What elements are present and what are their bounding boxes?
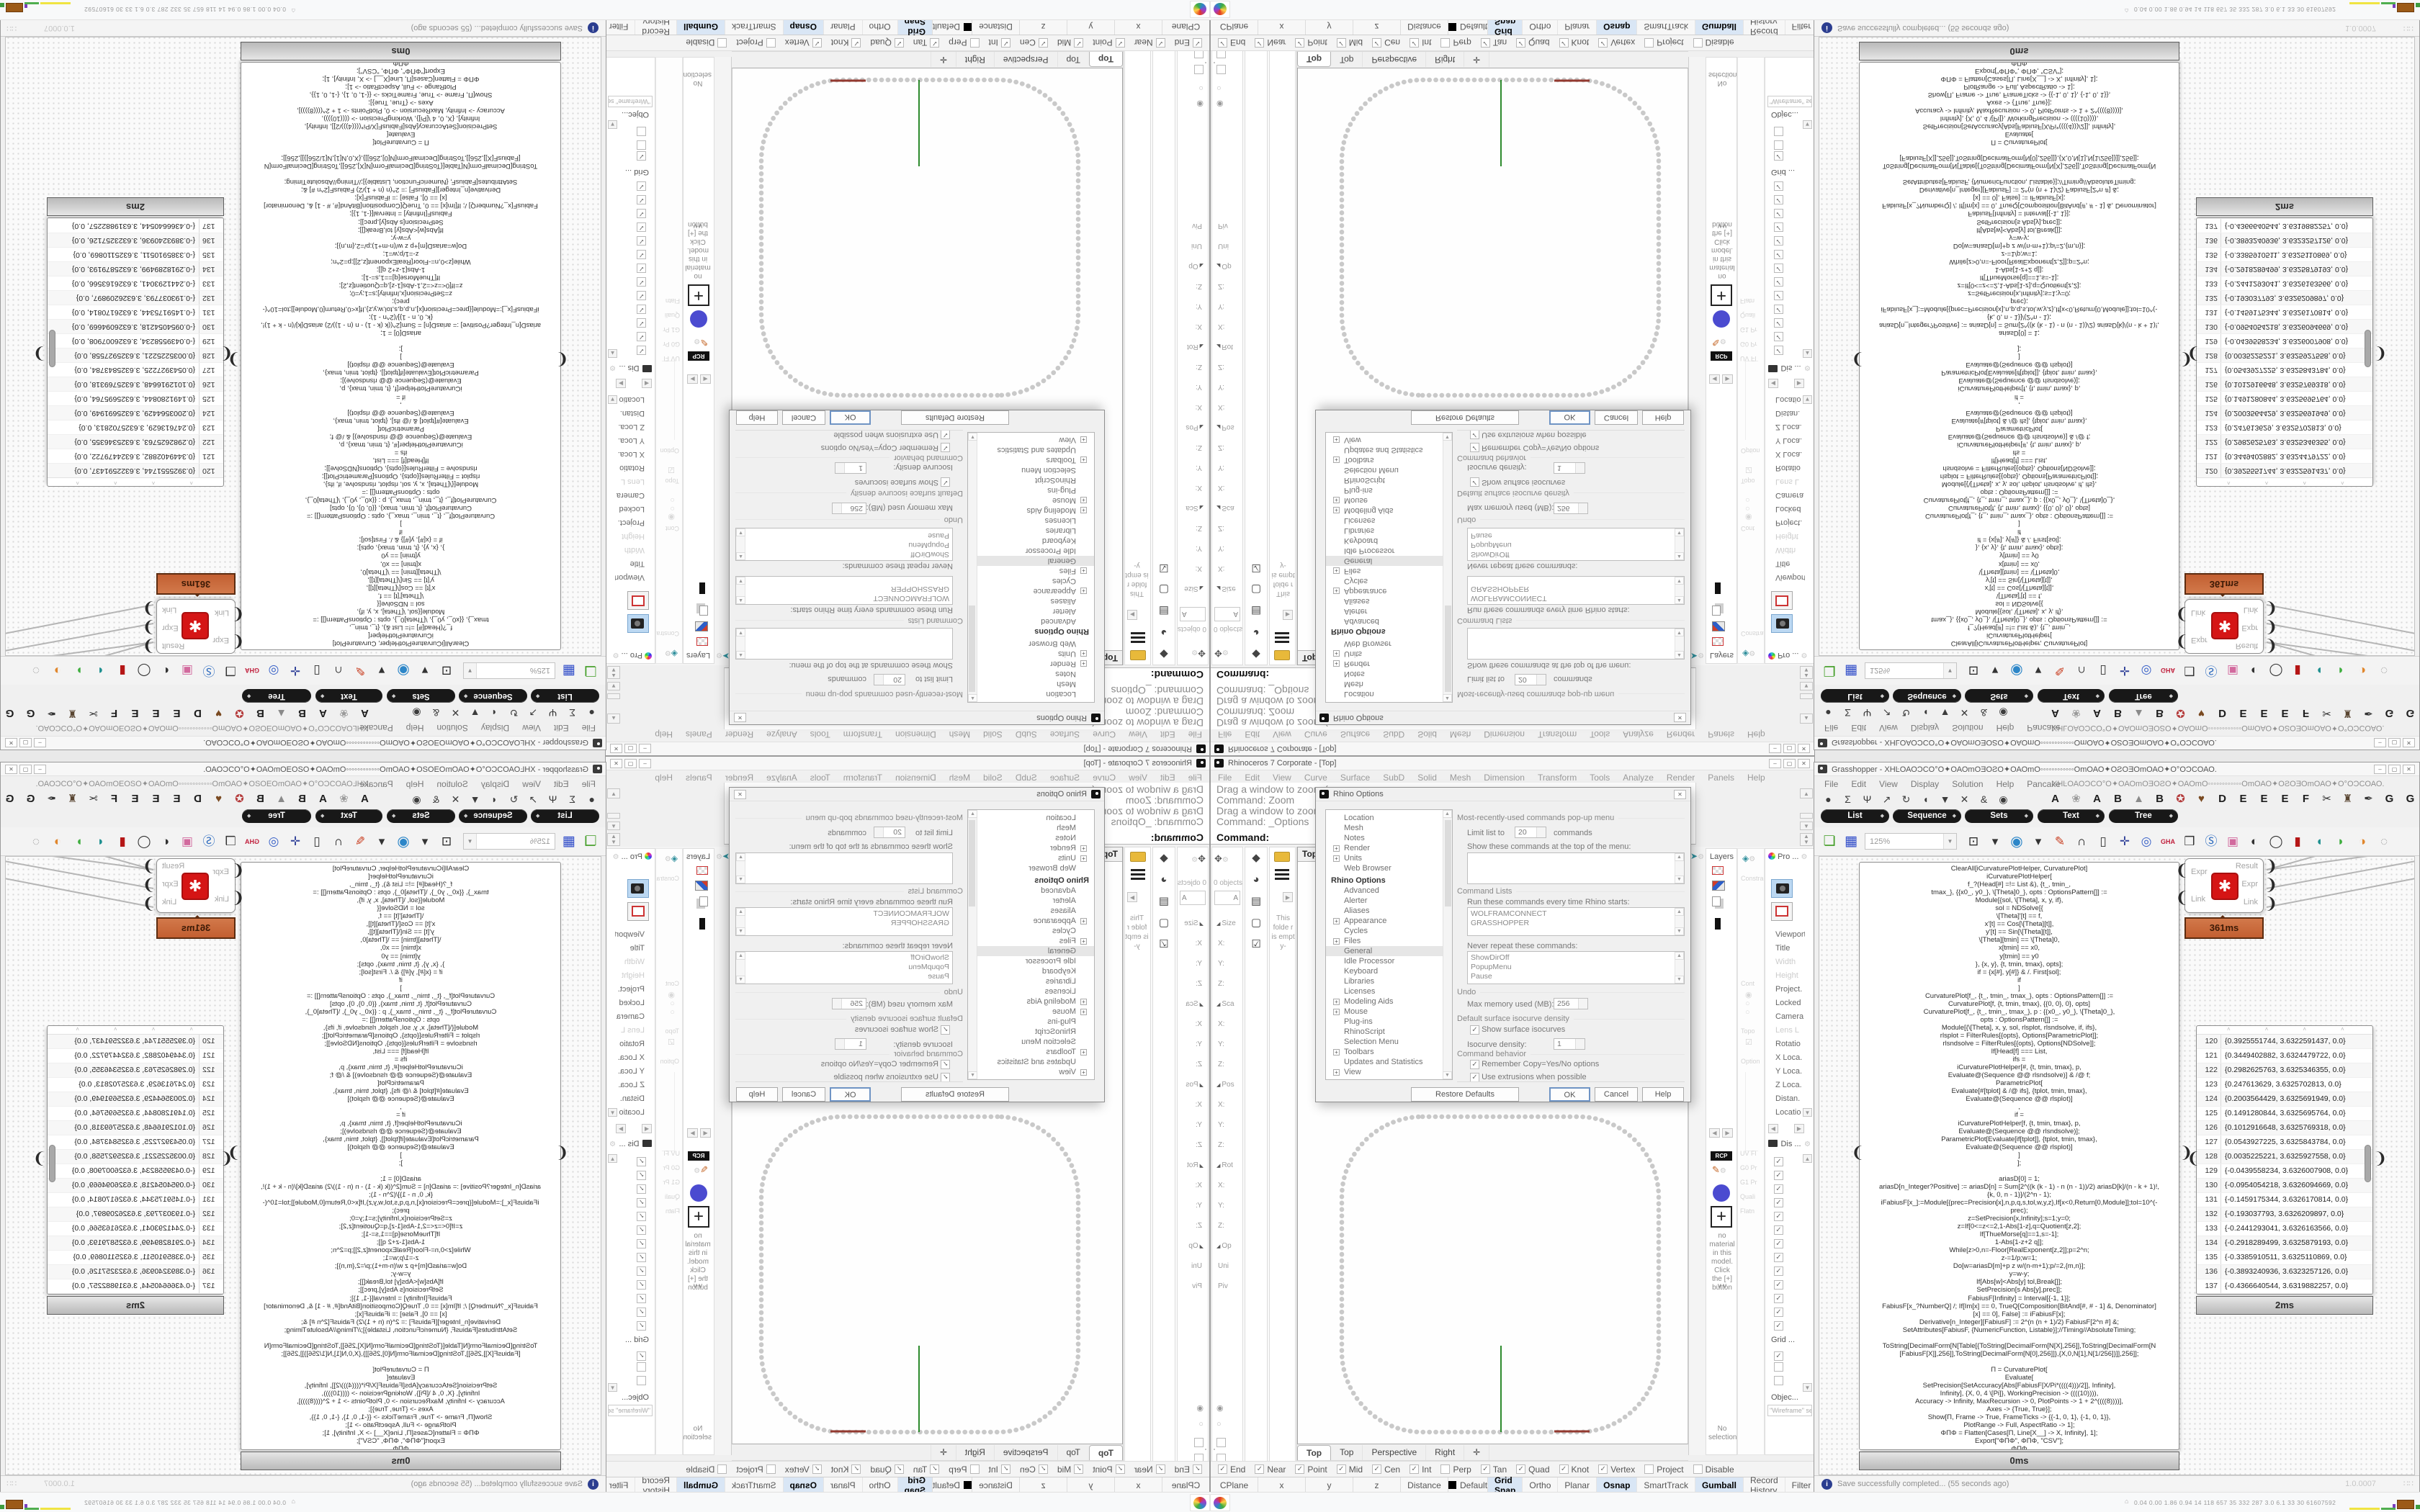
status-cell[interactable]: y <box>1067 1477 1114 1493</box>
boxedit-row[interactable]: Z: <box>1214 351 1242 371</box>
options-tree-item[interactable]: Updates and Statistics <box>968 445 1094 455</box>
plugin-tab[interactable]: ♥ <box>2191 704 2212 721</box>
tab-curve[interactable]: ↻ <box>504 704 524 721</box>
input-label[interactable]: Link <box>215 608 229 617</box>
speaker-icon[interactable]: ▯ <box>308 662 326 680</box>
point-row[interactable]: 135 {-0.3385910511, 3.6325110869, 0.0} <box>48 247 223 261</box>
boxedit-row[interactable]: X: <box>1214 391 1242 411</box>
options-tree-item[interactable]: Plug-ins <box>1326 485 1452 495</box>
plugin-tab[interactable]: B <box>292 704 313 721</box>
boxedit-row[interactable]: Y: <box>1214 371 1242 391</box>
startup-command[interactable]: WOLFRAMCONNECT <box>739 593 949 603</box>
viewport-properties-icon[interactable] <box>1771 591 1793 610</box>
gear-icon[interactable]: ⚙ <box>609 1140 616 1148</box>
rhino-menu-item[interactable]: View <box>1129 773 1147 783</box>
plugin-tab[interactable]: ✪ <box>2170 791 2191 808</box>
zoom-caret-icon[interactable]: ▾ <box>1986 662 2004 680</box>
rhino-menu-item[interactable]: Solid <box>983 773 1003 783</box>
options-tree-item[interactable]: Advanced <box>1326 616 1452 626</box>
point-row[interactable]: 122 {0.2982625763, 3.6325346355, 0.0} <box>48 1063 223 1078</box>
display-checkbox-row[interactable]: ✓ <box>637 1277 646 1291</box>
gha-badge-icon[interactable]: GHA <box>243 662 261 680</box>
point-row[interactable]: 123 {0.247613629, 3.6325702813, 0.0} <box>2197 420 2372 434</box>
cancel-button[interactable]: Cancel <box>1595 410 1638 425</box>
options-tree-item[interactable]: +View <box>1326 1067 1452 1077</box>
options-tree-item[interactable]: +Mouse <box>1326 495 1452 505</box>
red-cylinder-icon[interactable]: ▮ <box>113 832 132 851</box>
plugin-tab[interactable]: ✂ <box>83 704 104 721</box>
property-row[interactable]: Rotatio <box>1765 461 1805 474</box>
osnap-toggle[interactable]: ✓Vertex <box>785 1464 822 1475</box>
plugin-tab[interactable]: E <box>125 791 145 808</box>
rhino-menu-item[interactable]: Surface <box>1050 729 1080 739</box>
add-material-button[interactable]: + <box>688 1206 709 1228</box>
display-checkbox-row[interactable]: ✓ <box>637 1264 646 1277</box>
boxedit-row[interactable]: X: <box>1214 552 1242 572</box>
options-tree-item[interactable]: +View <box>968 1067 1094 1077</box>
options-tree-item[interactable]: Libraries <box>968 976 1094 986</box>
display-checkbox-row[interactable]: ✓ <box>637 1305 646 1318</box>
plugin-tab[interactable]: B <box>2107 704 2128 721</box>
window-chart-icon[interactable]: ❒ <box>221 832 240 851</box>
boxedit-row[interactable]: ◢Sca <box>1214 1000 1242 1020</box>
point-row[interactable]: 128 {0.0035225221, 3.6325927558, 0.0} <box>2197 348 2372 362</box>
point-row[interactable]: 136 {-0.3893240936, 3.6323257126, 0.0} <box>48 1265 223 1279</box>
options-tree-item[interactable]: Location <box>968 813 1094 823</box>
point-row[interactable]: 121 {0.3449402882, 3.6324479722, 0.0} <box>2197 449 2372 463</box>
dropdown-icon[interactable]: ▼ <box>1803 120 1812 129</box>
scroll-flat-icon[interactable] <box>607 813 620 819</box>
boxedit-row[interactable]: ◢Rot <box>1178 1161 1206 1182</box>
tree-scrollbar[interactable]: ▲ ▼ <box>1443 433 1452 702</box>
options-tree-item[interactable]: +Modeling Aids <box>1326 996 1452 1007</box>
status-cell[interactable]: z <box>1019 1477 1067 1493</box>
startup-commands-listbox[interactable]: WOLFRAMCONNECTGRASSHOPPER ▲▼ <box>735 907 953 936</box>
code-panel-input-grip[interactable]: ❨ <box>1851 350 1864 369</box>
startup-commands-listbox[interactable]: WOLFRAMCONNECTGRASSHOPPER ▲▼ <box>1467 576 1685 605</box>
point-list-panel[interactable]: ˄˄˄˄ 120 {0.3925551744, 3.6322591437, 0.… <box>47 1025 224 1295</box>
minimize-button[interactable]: – <box>34 738 46 747</box>
startup-command[interactable]: GRASSHOPPER <box>1471 919 1681 928</box>
plugin-tab[interactable]: G <box>20 704 41 721</box>
plugin-tab[interactable]: ▲ <box>2128 791 2149 808</box>
plugin-tab[interactable]: E <box>145 704 166 721</box>
osnap-toggle[interactable]: Perp <box>949 1464 979 1475</box>
script-search-icon[interactable]: Ⓢ <box>200 662 218 680</box>
tab-display[interactable]: ◉ <box>1994 791 2013 808</box>
point-row[interactable]: 127 {0.0543927225, 3.6325843784, 0.0} <box>48 1135 223 1150</box>
pager-left-icon[interactable]: ◀ <box>1709 1128 1720 1138</box>
faint-check[interactable]: ☑ <box>668 1038 675 1047</box>
boxedit-row[interactable]: Uni <box>1178 230 1206 250</box>
plugin-tab[interactable]: E <box>145 791 166 808</box>
tab-params[interactable]: ● <box>582 791 601 808</box>
property-row[interactable]: Z Loca. <box>615 420 655 433</box>
close-button[interactable]: ✕ <box>610 744 622 753</box>
sphere-icon[interactable]: ◕ <box>1245 621 1267 643</box>
status-cell[interactable]: y <box>1306 19 1353 35</box>
rcp-badge[interactable]: RCP <box>688 1151 709 1161</box>
grasshopper-menu-item[interactable]: File <box>1824 779 1838 789</box>
options-tree-item[interactable]: Selection Menu <box>1326 1037 1452 1047</box>
point-row[interactable]: 120 {0.3925551744, 3.6322591437, 0.0} <box>48 463 223 477</box>
viewport-tab[interactable]: Top <box>1089 1445 1123 1460</box>
component-output-grip[interactable]: ❩ <box>2264 894 2277 913</box>
gear-icon[interactable]: ⚙ <box>1222 648 1229 656</box>
tab-mesh[interactable]: ▼ <box>465 704 485 721</box>
show-isocurves-checkbox[interactable]: ✓ Show surface isocurves <box>1470 477 1565 487</box>
property-row[interactable]: Z Loca. <box>1765 420 1805 433</box>
grid-checkbox-row[interactable]: ✓ <box>1774 150 1783 163</box>
zoom-caret-icon[interactable]: ▾ <box>416 832 434 851</box>
plugin-tab[interactable]: A <box>2087 791 2107 808</box>
ok-button[interactable]: OK <box>1549 410 1590 425</box>
osnap-toggle[interactable]: Project <box>736 1464 775 1475</box>
options-tree-item[interactable]: Selection Menu <box>968 1037 1094 1047</box>
status-cell[interactable]: CPlane <box>1162 19 1209 35</box>
point-row[interactable]: 126 {0.1012916648, 3.6325769318, 0.0} <box>2197 377 2372 391</box>
property-row[interactable]: Y Loca. <box>1765 433 1805 447</box>
point-row[interactable]: 134 {-0.2918289499, 3.6325879193, 0.0} <box>48 1236 223 1251</box>
code-panel-input-grip[interactable]: ❨ <box>556 350 569 369</box>
component-output-grip[interactable]: ❩ <box>2264 636 2277 655</box>
code-panel[interactable]: ClearAll[iCurvaturePlotHelper, Curvature… <box>1859 62 2179 650</box>
never-repeat-command[interactable]: PopupMenu <box>1471 963 1681 972</box>
rcp-badge[interactable]: RCP <box>688 351 709 361</box>
w-nucleus-component[interactable]: Expr Link Result Expr Link ✱ <box>2184 858 2264 913</box>
status-cell[interactable]: CPlane <box>1211 1477 1258 1493</box>
input-label[interactable]: Expr <box>212 636 229 644</box>
options-tree-item[interactable]: +Render <box>1326 843 1452 853</box>
expand-arrow-icon[interactable]: ▶ <box>1283 892 1293 902</box>
osnap-toggle[interactable]: ✓End <box>1218 38 1245 48</box>
viewport-tab[interactable]: Perspective <box>1363 52 1426 67</box>
boxedit-row[interactable]: Y: <box>1178 371 1206 391</box>
display-checkbox-row[interactable]: ✓ <box>1774 1250 1783 1264</box>
display-mode-field[interactable]: "Wireframe" set <box>608 96 653 107</box>
boxedit-row[interactable]: X: <box>1214 472 1242 492</box>
display-mode-field[interactable]: "Wireframe" set <box>1767 1405 1812 1416</box>
open-file-icon[interactable]: ❏ <box>1820 662 1839 680</box>
viewport-tab[interactable]: Top <box>1331 52 1363 67</box>
tab-vector[interactable]: ↗ <box>524 704 543 721</box>
boxedit-row[interactable]: Y: <box>1178 532 1206 552</box>
tree-scrollbar[interactable]: ▲ ▼ <box>968 810 977 1079</box>
list-scrollbar-thumb[interactable] <box>2365 1145 2371 1182</box>
osnap-toggle[interactable]: Perp <box>1440 38 1471 48</box>
display-checkbox-row[interactable]: ✓ <box>637 235 646 248</box>
property-row[interactable]: Locatio <box>1765 392 1805 406</box>
grasshopper-menu-item[interactable]: File <box>582 723 596 733</box>
pager-left-icon[interactable] <box>1214 62 1215 63</box>
status-toggle[interactable]: SmartTrack <box>725 19 783 35</box>
display-checkbox-row[interactable]: ✓ <box>1774 330 1783 344</box>
close-button[interactable]: ✕ <box>2403 738 2415 747</box>
options-tree-item[interactable]: Licenses <box>968 986 1094 996</box>
checkpen-icon[interactable]: ☑ <box>1153 557 1175 578</box>
never-repeat-command[interactable]: PopupMenu <box>739 963 949 972</box>
boxedit-row[interactable]: ◢Pos <box>1214 411 1242 431</box>
options-tree-item[interactable]: Web Browser <box>1326 863 1452 873</box>
display-checkbox-row[interactable]: ✓ <box>637 194 646 207</box>
scroll-up-icon[interactable]: ▲ <box>1803 1154 1812 1163</box>
options-tree-item[interactable]: +Toolbars <box>968 1047 1094 1057</box>
swatch-icon[interactable]: ▢ <box>1245 578 1267 600</box>
layers-panel-title[interactable]: Layers <box>686 651 710 660</box>
status-cell[interactable]: z <box>1019 19 1067 35</box>
minimize-button[interactable]: – <box>639 759 651 768</box>
never-repeat-listbox[interactable]: ShowDirOffPopupMenuPause ▲▼ <box>735 528 953 561</box>
status-toggle[interactable]: Planar <box>1558 19 1597 35</box>
startup-command[interactable]: GRASSHOPPER <box>739 584 949 593</box>
tab-transform[interactable]: & <box>426 704 446 721</box>
minimize-button[interactable]: – <box>639 744 651 753</box>
layer-default-cell[interactable]: Default <box>1448 1477 1488 1493</box>
dropdown-icon[interactable]: ▼ <box>608 120 617 129</box>
grasshopper-menu-item[interactable]: Solution <box>1952 723 1983 733</box>
code-panel[interactable]: ClearAll[iCurvaturePlotHelper, Curvature… <box>241 62 561 650</box>
viewport-tab[interactable]: Right <box>956 52 994 67</box>
boxedit-row[interactable]: Piv <box>1214 1282 1242 1302</box>
status-cell[interactable]: Distance <box>1401 1477 1448 1493</box>
maximize-button[interactable]: ▢ <box>19 765 32 774</box>
grid-checkbox-row[interactable]: ✓ <box>637 150 646 163</box>
boxedit-radio-off[interactable]: ○ <box>1198 1420 1204 1428</box>
status-cell[interactable]: z <box>1353 1477 1401 1493</box>
point-row[interactable]: 135 {-0.3385910511, 3.6325110869, 0.0} <box>2197 1251 2372 1265</box>
limit-list-spinner[interactable]: 20 <box>1515 827 1546 838</box>
input-label[interactable]: Link <box>2191 608 2205 617</box>
tab-sets[interactable]: Ψ <box>1857 791 1877 808</box>
boxedit-row[interactable]: Z: <box>1178 1222 1206 1242</box>
point-row[interactable]: 130 {-0.0954054218, 3.6326094669, 0.0} <box>2197 319 2372 333</box>
maximize-button[interactable]: ▢ <box>624 744 637 753</box>
cap-icon[interactable]: ◆ <box>1153 643 1175 665</box>
cancel-button[interactable]: Cancel <box>782 1087 825 1102</box>
pill-sequence[interactable]: Sequence <box>459 809 527 823</box>
rhino-menu-item[interactable]: Analyze <box>766 729 797 739</box>
osnap-toggle[interactable]: ✓Cen <box>1020 1464 1048 1475</box>
boxedit-checkbox[interactable] <box>1216 1438 1226 1447</box>
point-row[interactable]: 133 {-0.2441293041, 3.6326163566, 0.0} <box>48 276 223 290</box>
plugin-tab[interactable]: E <box>2275 704 2295 721</box>
rhino-menu-item[interactable]: Curve <box>1304 773 1327 783</box>
close-button[interactable]: ✕ <box>1798 759 1810 768</box>
scroll-up-icon[interactable]: ▲ <box>1803 349 1812 358</box>
display-checkbox-row[interactable]: ✓ <box>1774 1223 1783 1236</box>
component-output-grip[interactable]: ❩ <box>2264 599 2277 618</box>
spinner-icon[interactable]: ▲▼ <box>607 666 620 679</box>
display-checkbox-row[interactable]: ✓ <box>1774 276 1783 289</box>
boxedit-row[interactable]: ◢Op <box>1178 250 1206 270</box>
point-row[interactable]: 121 {0.3449402882, 3.6324479722, 0.0} <box>2197 1049 2372 1063</box>
pill-text[interactable]: Text <box>2038 809 2105 823</box>
point-row[interactable]: 124 {0.2003564429, 3.6325691949, 0.0} <box>2197 1092 2372 1107</box>
component-output-grip[interactable]: ❩ <box>2264 618 2277 636</box>
show-isocurves-checkbox[interactable]: ✓ Show surface isocurves <box>1470 1025 1565 1035</box>
preview-caret-icon[interactable]: ▾ <box>372 832 391 851</box>
tree-scrollbar[interactable]: ▲ ▼ <box>1443 810 1452 1079</box>
property-row[interactable]: Height <box>615 969 655 983</box>
osnap-toggle[interactable]: ✓Int <box>989 1464 1010 1475</box>
component-output-grip[interactable]: ❩ <box>143 894 156 913</box>
plugin-tab[interactable]: ♜ <box>2337 791 2358 808</box>
teal-blob-icon[interactable]: ◖ <box>2310 662 2329 680</box>
point-list-panel[interactable]: ˄˄˄˄ 120 {0.3925551744, 3.6322591437, 0.… <box>2196 217 2373 487</box>
status-toggle[interactable]: Osnap <box>1597 1477 1637 1493</box>
paint-tool-icon[interactable]: ✎⚙ <box>694 336 708 348</box>
rhino-menu-item[interactable]: Mesh <box>949 773 970 783</box>
rhino-menu-item[interactable]: SubD <box>1383 729 1404 739</box>
options-tree-item[interactable]: Aliases <box>1326 596 1452 606</box>
never-repeat-command[interactable]: Pause <box>1471 972 1681 981</box>
add-material-button[interactable]: + <box>688 284 709 306</box>
options-tree-item[interactable]: Idle Processor <box>968 546 1094 556</box>
max-memory-spinner[interactable]: 256 <box>1554 998 1588 1009</box>
property-row[interactable]: Title <box>1765 942 1805 955</box>
grid-checkbox-row[interactable]: ✓ <box>637 1349 646 1362</box>
grasshopper-menu-item[interactable]: Display <box>481 723 509 733</box>
point-row[interactable]: 135 {-0.3385910511, 3.6325110869, 0.0} <box>48 1251 223 1265</box>
never-repeat-command[interactable]: Pause <box>739 531 949 540</box>
rhino-menu-item[interactable]: Transform <box>843 773 882 783</box>
point-row[interactable]: 134 {-0.2918289499, 3.6325879193, 0.0} <box>2197 1236 2372 1251</box>
selection-circle-icon[interactable]: ◌ <box>2375 662 2393 680</box>
property-row[interactable]: Distan. <box>615 406 655 420</box>
remember-copy-checkbox[interactable]: ✓ Remember Copy=Yes/No options <box>1470 1060 1599 1069</box>
status-toggle[interactable]: Gumball <box>676 1477 725 1493</box>
property-row[interactable]: Camera <box>615 488 655 502</box>
viewport-tab[interactable]: Top <box>1297 52 1331 67</box>
rhino-menu-item[interactable]: Tools <box>1590 729 1610 739</box>
dropdown-icon[interactable]: ▼ <box>1803 1383 1812 1392</box>
osnap-toggle[interactable]: ✓Vertex <box>1598 1464 1635 1475</box>
property-row[interactable]: X Loca. <box>1765 447 1805 461</box>
boxedit-row[interactable]: Z: <box>1214 1141 1242 1161</box>
plugin-tab[interactable]: B <box>250 791 271 808</box>
point-row[interactable]: 131 {-0.1459175344, 3.6326170814, 0.0} <box>48 305 223 319</box>
rhino-menu-item[interactable]: Surface <box>1340 729 1370 739</box>
property-row[interactable]: Distan. <box>615 1092 655 1106</box>
tab-surface[interactable]: ◖ <box>1916 791 1935 808</box>
axes-icon[interactable]: ✛ <box>2115 832 2134 851</box>
options-tree-item[interactable]: +Render <box>1326 659 1452 669</box>
cancel-button[interactable]: Cancel <box>782 410 825 425</box>
properties-panel-title[interactable]: Pro ... ⚙ <box>1768 651 1807 660</box>
plugin-tab[interactable]: D <box>2212 791 2233 808</box>
status-cell[interactable]: z <box>1353 19 1401 35</box>
connect-icon[interactable]: ◎ <box>2137 662 2156 680</box>
grasshopper-menu-item[interactable]: Edit <box>554 779 569 789</box>
component-input-grip[interactable]: ❨ <box>232 605 245 624</box>
swatch-icon[interactable]: ▢ <box>1245 912 1267 934</box>
tab-surface[interactable]: ◖ <box>485 791 504 808</box>
component-output-grip[interactable]: ❩ <box>143 618 156 636</box>
dialog-close-button[interactable]: ✕ <box>1674 790 1686 799</box>
help-icon[interactable] <box>690 310 707 328</box>
point-row[interactable]: 127 {0.0543927225, 3.6325843784, 0.0} <box>2197 1135 2372 1150</box>
display-checkbox-row[interactable]: ✓ <box>637 1291 646 1305</box>
grasshopper-menu-item[interactable]: Help <box>1996 723 2015 733</box>
preview-eye-icon[interactable]: ◉ <box>394 832 413 851</box>
max-memory-spinner[interactable]: 256 <box>832 998 866 1009</box>
display-checkbox-row[interactable]: ✓ <box>637 262 646 276</box>
point-row[interactable]: 137 {-0.4366640544, 3.6319882257, 0.0} <box>48 218 223 233</box>
pill-sequence[interactable]: Sequence <box>1893 689 1961 703</box>
options-tree-item[interactable]: +Appearance <box>968 586 1094 596</box>
teal-blob-icon[interactable]: ◖ <box>2310 832 2329 851</box>
point-row[interactable]: 135 {-0.3385910511, 3.6325110869, 0.0} <box>2197 247 2372 261</box>
connect-icon[interactable]: ◎ <box>264 662 283 680</box>
list-input-grip[interactable]: ❨ <box>2187 1149 2200 1168</box>
boxedit-icon[interactable]: ✥⚙ <box>1214 643 1239 659</box>
options-tree-item[interactable]: Keyboard <box>968 536 1094 546</box>
plugin-tab[interactable]: B <box>2149 791 2170 808</box>
osnap-toggle[interactable]: ✓Cen <box>1372 1464 1400 1475</box>
point-row[interactable]: 129 {-0.0439558234, 3.6326007908, 0.0} <box>48 333 223 348</box>
boxedit-row[interactable]: Z: <box>1214 980 1242 1000</box>
property-row[interactable]: Title <box>1765 557 1805 570</box>
list-scrollbar-thumb[interactable] <box>49 330 55 367</box>
display-checkbox-row[interactable]: ✓ <box>637 1318 646 1332</box>
rhino-menu-item[interactable]: Edit <box>1160 773 1175 783</box>
point-row[interactable]: 133 {-0.2441293041, 3.6326163566, 0.0} <box>2197 276 2372 290</box>
display-checkbox-row[interactable]: ✓ <box>1774 1291 1783 1305</box>
property-row[interactable]: Viewport <box>615 928 655 942</box>
folder-icon[interactable] <box>1274 650 1290 660</box>
boxedit-radio-off[interactable]: ○ <box>1216 1420 1222 1428</box>
property-row[interactable]: Rotatio <box>1765 1038 1805 1051</box>
rhino-menu-item[interactable]: Curve <box>1093 729 1116 739</box>
display-checkbox-row[interactable]: ✓ <box>637 317 646 330</box>
plugin-tab[interactable]: ▲ <box>271 704 292 721</box>
point-row[interactable]: 125 {0.1491280844, 3.6325695764, 0.0} <box>48 1107 223 1121</box>
boxedit-row[interactable]: ◢Op <box>1214 250 1242 270</box>
osnap-toggle[interactable]: ✓Knot <box>1559 1464 1590 1475</box>
expand-arrow-icon[interactable]: ▶ <box>1283 610 1293 620</box>
never-repeat-listbox[interactable]: ShowDirOffPopupMenuPause ▲▼ <box>1467 528 1685 561</box>
property-row[interactable]: Width <box>1765 955 1805 969</box>
rhino-menu-item[interactable]: View <box>1129 729 1147 739</box>
save-file-icon[interactable]: ▦ <box>560 662 578 680</box>
property-row[interactable]: Distan. <box>1765 1092 1805 1106</box>
plugin-tab[interactable]: G <box>0 704 20 721</box>
options-tree-item[interactable]: Mesh <box>1326 679 1452 689</box>
maximize-button[interactable]: ▢ <box>19 738 32 747</box>
property-row[interactable]: Lens L <box>1765 1024 1805 1038</box>
pager-right-icon[interactable]: ▶ <box>687 1128 698 1138</box>
display-checkbox-row[interactable]: ✓ <box>637 1250 646 1264</box>
connect-icon[interactable]: ◎ <box>2137 832 2156 851</box>
property-row[interactable]: Locked <box>1765 996 1805 1010</box>
point-row[interactable]: 136 {-0.3893240936, 3.6323257126, 0.0} <box>2197 1265 2372 1279</box>
osnap-toggle[interactable]: ✓Vertex <box>1598 38 1635 48</box>
boxedit-row[interactable]: ◢Sca <box>1214 492 1242 512</box>
options-tree-item[interactable]: +Files <box>968 566 1094 576</box>
options-tree-item[interactable]: Mesh <box>968 679 1094 689</box>
osnap-toggle[interactable]: ✓Int <box>1410 38 1431 48</box>
options-tree-item[interactable]: Idle Processor <box>1326 546 1452 556</box>
property-row[interactable]: Project. <box>1765 983 1805 996</box>
viewport-tab[interactable]: Top <box>1089 52 1123 67</box>
plugin-tab[interactable]: D <box>2212 704 2233 721</box>
options-tree-item[interactable]: General <box>968 556 1094 566</box>
list-output-grip[interactable]: ❩ <box>33 344 46 363</box>
point-row[interactable]: 122 {0.2982625763, 3.6325346355, 0.0} <box>2197 434 2372 449</box>
ok-button[interactable]: OK <box>830 410 871 425</box>
rhino-menu-item[interactable]: Tools <box>810 773 830 783</box>
property-row[interactable]: Locatio <box>1765 1106 1805 1120</box>
